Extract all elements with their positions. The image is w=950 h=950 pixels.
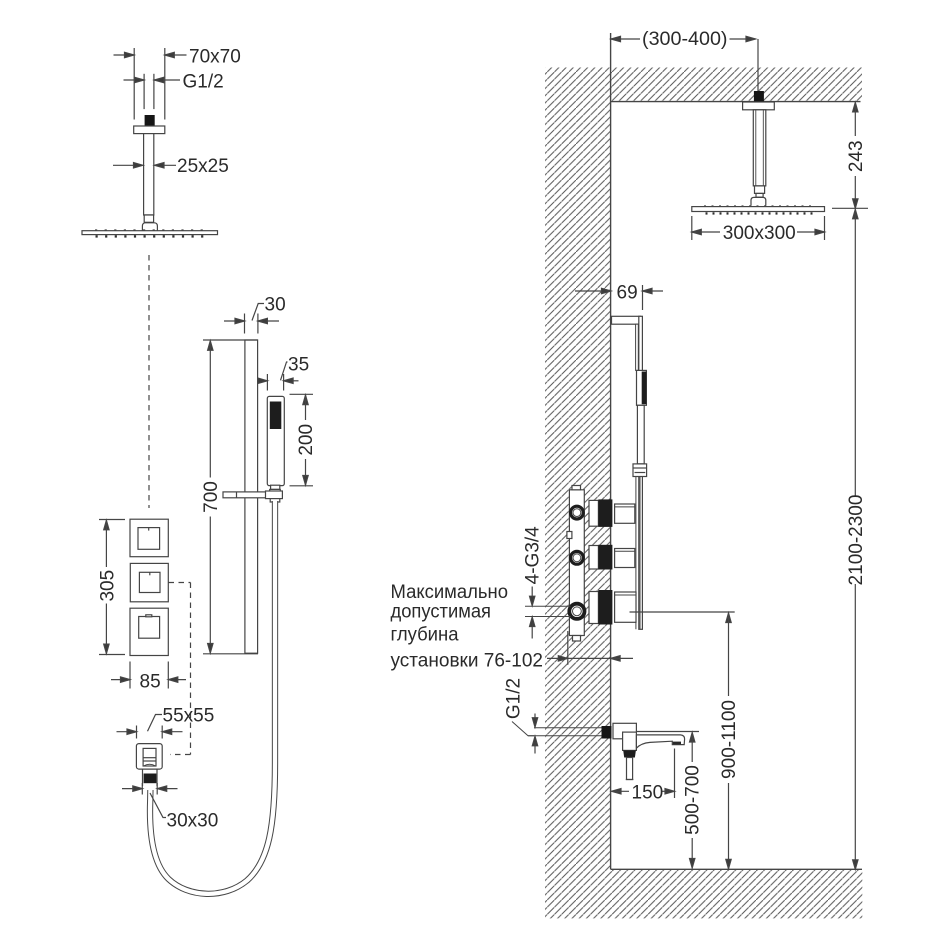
svg-text:200: 200 [296, 424, 317, 456]
svg-text:900-1100: 900-1100 [719, 700, 740, 779]
svg-text:(300-400): (300-400) [642, 29, 728, 50]
svg-text:Максимально: Максимально [391, 582, 509, 603]
svg-text:700: 700 [201, 481, 222, 513]
svg-text:30x30: 30x30 [167, 811, 219, 832]
svg-text:25x25: 25x25 [177, 156, 229, 177]
svg-text:G1/2: G1/2 [504, 678, 525, 719]
svg-text:150: 150 [632, 782, 664, 803]
svg-text:85: 85 [140, 671, 161, 692]
svg-text:300x300: 300x300 [723, 223, 796, 244]
svg-text:допустимая: допустимая [391, 602, 492, 623]
svg-text:30: 30 [265, 295, 286, 316]
svg-text:243: 243 [846, 140, 867, 172]
svg-text:4-G3/4: 4-G3/4 [523, 526, 544, 585]
svg-text:глубина: глубина [391, 625, 459, 646]
svg-text:установки 76-102: установки 76-102 [391, 651, 544, 672]
svg-text:2100-2300: 2100-2300 [846, 495, 867, 586]
svg-text:G1/2: G1/2 [183, 72, 224, 93]
svg-text:70x70: 70x70 [189, 47, 241, 68]
svg-text:69: 69 [617, 283, 638, 304]
svg-text:35: 35 [288, 355, 309, 376]
svg-text:55x55: 55x55 [163, 706, 215, 727]
svg-text:500-700: 500-700 [683, 765, 704, 835]
svg-text:305: 305 [97, 570, 118, 602]
